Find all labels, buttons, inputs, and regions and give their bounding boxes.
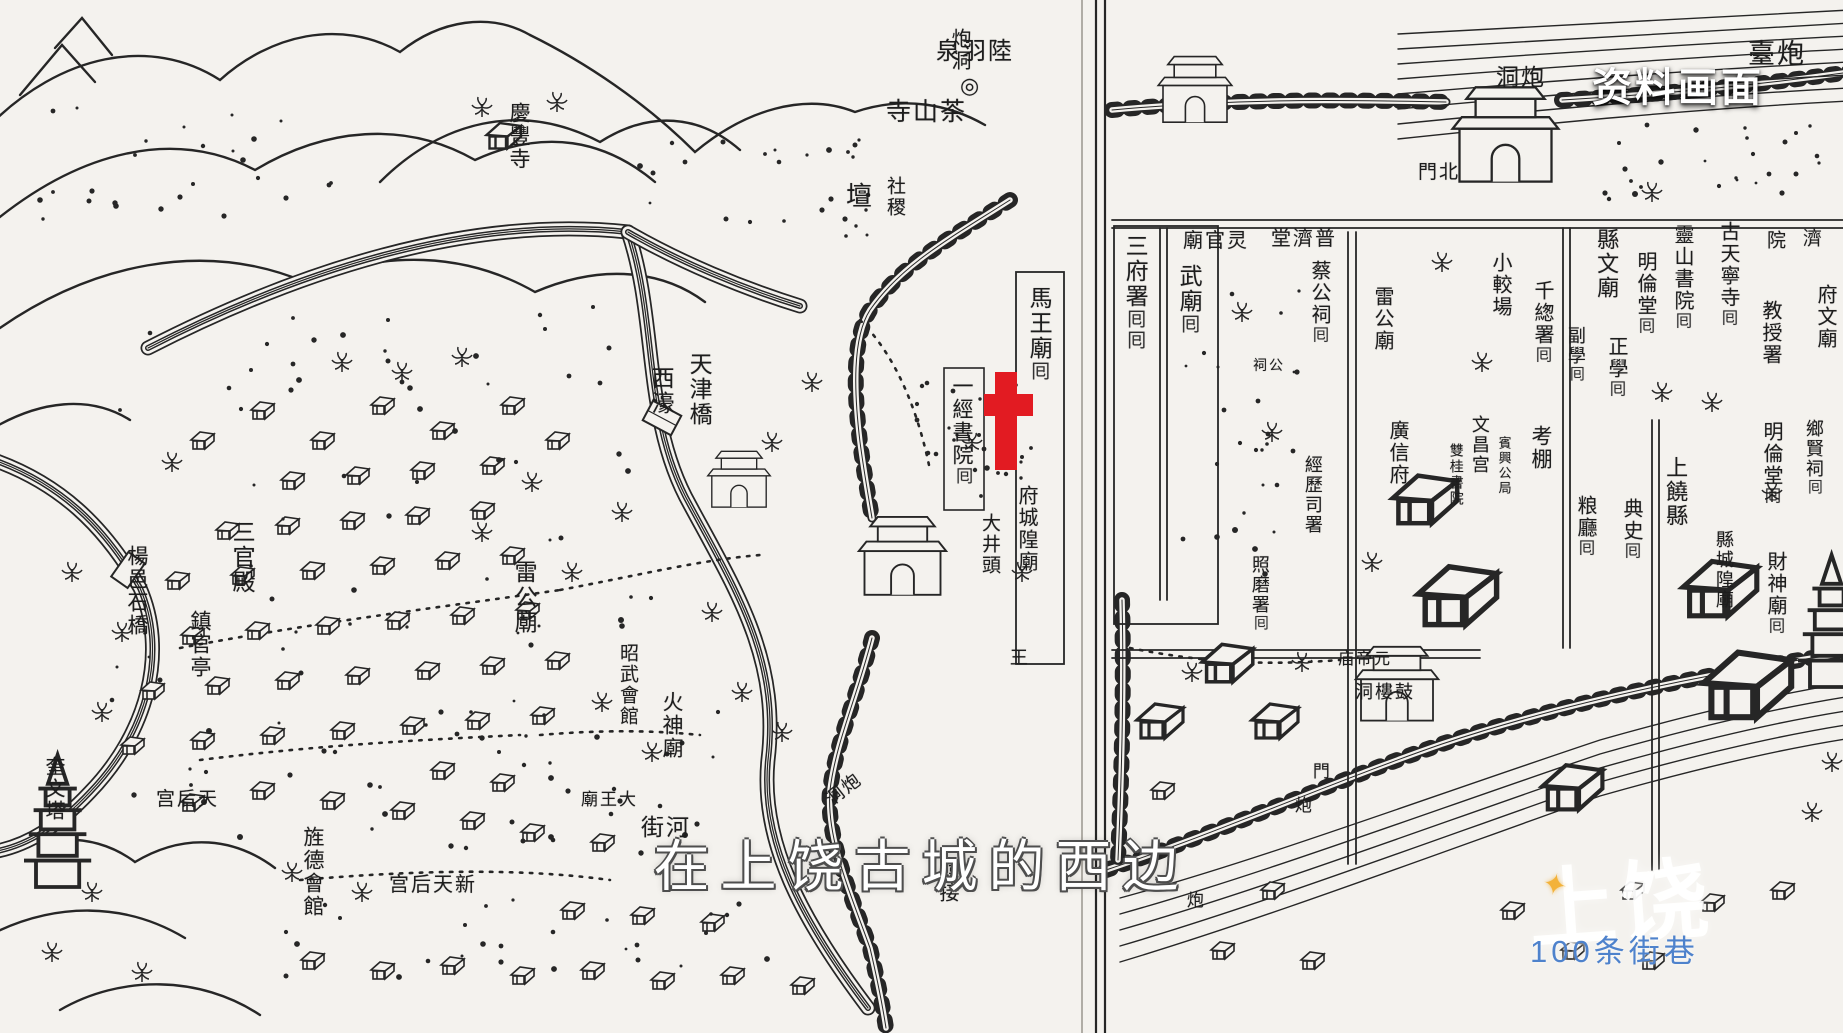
map-label: 縣城隍廟 — [1714, 530, 1733, 610]
map-label-text: 門北 — [1418, 162, 1460, 183]
map-label: 壇 — [846, 183, 874, 210]
map-label: 副學囘 — [1566, 326, 1585, 383]
map-label: 寺山茶 — [886, 100, 967, 126]
map-label-text: 考棚 — [1529, 425, 1553, 471]
hall-symbol: 囘 — [1719, 309, 1738, 327]
map-label: 縣文廟 — [1595, 228, 1618, 300]
map-label-text: 雷公廟 — [511, 560, 536, 635]
map-label: 奎文塔 — [42, 756, 63, 822]
map-label: 明倫堂囘 — [1760, 421, 1781, 505]
map-label: 照磨署囘 — [1250, 555, 1269, 632]
map-label: 炮洞 — [948, 28, 969, 72]
video-frame: 泉羽陸◎寺山茶壇社稷慶豐寺炮洞天津橋西濠馬王廟囘一經書院囘大井頭府城隍廟王三官殿… — [0, 0, 1843, 1033]
map-label-text: 明倫堂 — [1634, 251, 1656, 317]
map-label: 雙桂書院 — [1447, 443, 1462, 507]
map-label: 門北 — [1418, 163, 1460, 183]
map-label-text: 庙帝元 — [1338, 651, 1392, 668]
map-label-text: 堂濟普 — [1271, 228, 1337, 250]
map-label: 火神廟 — [661, 691, 683, 760]
map-label-text: 武廟 — [1176, 264, 1201, 314]
map-label: 教授署 — [1759, 300, 1780, 366]
map-label: 雷公廟 — [1371, 286, 1392, 352]
map-label: 洞炮 — [822, 770, 865, 810]
hall-symbol: 囘 — [1673, 312, 1692, 330]
map-label: 明倫堂囘 — [1634, 251, 1655, 335]
map-label-text: 蔡公祠 — [1308, 260, 1330, 326]
map-label: 考棚 — [1530, 425, 1552, 471]
map-label-text: 雷公廟 — [1371, 286, 1393, 352]
hall-symbol: 囘 — [1310, 326, 1329, 344]
map-label: 蔡公祠囘 — [1308, 260, 1329, 344]
map-label-text: 財神廟 — [1764, 551, 1786, 617]
map-label: 濟 — [1800, 228, 1820, 249]
map-label: 宫后天 — [156, 790, 219, 810]
map-label-text: 縣城隍廟 — [1714, 530, 1734, 610]
map-label: 堂濟普 — [1271, 229, 1337, 250]
map-label: 洞炮 — [1496, 66, 1546, 90]
hall-symbol: 囘 — [1252, 615, 1268, 632]
map-label-text: 昭武會館 — [617, 643, 638, 727]
map-label-text: 雙桂書院 — [1448, 443, 1463, 507]
map-label-text: 府文廟 — [1814, 284, 1836, 350]
map-label: 文昌宫 — [1470, 415, 1489, 475]
map-label-text: 縣文廟 — [1594, 228, 1619, 300]
map-label: 一經書院囘 — [951, 375, 973, 486]
map-label-text: 靈山書院 — [1671, 224, 1693, 312]
map-label: 社稷 — [884, 176, 904, 218]
map-label: 廣信府 — [1386, 420, 1407, 486]
map-label: 千緫署囘 — [1531, 280, 1552, 364]
map-label-text: 洞炮 — [1496, 65, 1546, 90]
map-label: 廟官灵 — [1183, 231, 1249, 252]
hall-symbol: 囘 — [1622, 542, 1641, 560]
map-label: 小較場 — [1489, 252, 1510, 318]
hall-symbol: 囘 — [1766, 617, 1785, 635]
map-label: 府城隍廟 — [1015, 485, 1036, 573]
map-label-text: 楊邑石橋 — [125, 545, 149, 637]
map-label-text: 副學 — [1566, 326, 1586, 366]
map-label-text: 洞樓鼓 — [1355, 682, 1415, 702]
map-label-text: 明倫堂 — [1760, 421, 1782, 487]
map-label-text: 一經書院 — [950, 375, 974, 467]
hall-symbol: 囘 — [1806, 479, 1822, 496]
hall-symbol: 囘 — [1568, 366, 1584, 383]
archival-footage-label: 资料画面 — [1592, 55, 1764, 113]
map-label: 庙帝元 — [1338, 652, 1392, 669]
map-label: 靈山書院囘 — [1671, 224, 1692, 330]
map-label: 西濠 — [648, 366, 672, 416]
map-label-text: 經歷司署 — [1303, 455, 1323, 535]
map-label: 鄉賢祠囘 — [1804, 419, 1823, 496]
map-label: 賓興公局 — [1497, 436, 1511, 496]
hall-symbol: 囘囘 — [1124, 309, 1145, 351]
map-label: ◎ — [960, 74, 981, 97]
map-label-text: 廟王大 — [581, 790, 638, 809]
map-label: 門 — [1310, 762, 1328, 781]
cross-vertical-bar — [995, 372, 1017, 470]
hall-symbol: 囘 — [1533, 346, 1552, 364]
map-label: 楊邑石橋 — [126, 545, 148, 637]
map-label-text: 典史 — [1620, 498, 1642, 542]
map-label-text: 炮洞 — [948, 28, 970, 72]
map-label: 三官殿 — [229, 520, 253, 595]
map-label-text: 府城隍廟 — [1015, 485, 1037, 573]
map-label-text: 古天寧寺 — [1717, 221, 1739, 309]
map-label-text: 千緫署 — [1531, 280, 1553, 346]
map-label: 武廟囘 — [1176, 264, 1200, 335]
map-label-text: 大井頭 — [979, 513, 1000, 576]
map-label-text: 馬王廟 — [1026, 286, 1051, 361]
map-label: 慶豐寺 — [508, 102, 530, 171]
hall-symbol: 囘 — [953, 467, 972, 486]
program-title: 100条街巷 — [1530, 926, 1699, 971]
map-label-text: 門 — [1310, 762, 1329, 781]
map-label-text: 天津橋 — [686, 352, 711, 427]
map-label-text: 賓興公局 — [1497, 436, 1512, 496]
map-label: 雷公廟 — [511, 560, 535, 635]
map-label-text: 三官殿 — [229, 520, 254, 595]
map-label-text: 小較場 — [1489, 252, 1511, 318]
hall-symbol: 囘 — [1762, 487, 1781, 505]
map-label-text: 壇 — [846, 182, 874, 211]
map-label-text: 祠公 — [1253, 359, 1285, 374]
map-label-text: 洞炮 — [822, 769, 866, 809]
map-label-text: 慶豐寺 — [507, 102, 531, 171]
map-label-text: 照磨署 — [1250, 555, 1270, 615]
map-label: 王 — [1008, 648, 1027, 668]
map-label: 古天寧寺囘 — [1717, 221, 1738, 327]
map-label-text: 正學 — [1605, 336, 1627, 380]
map-label: 炮 — [1292, 796, 1310, 815]
map-label-text: 宫后天 — [156, 789, 219, 810]
map-label-text: 院 — [1764, 230, 1785, 251]
map-label: 財神廟囘 — [1764, 551, 1785, 635]
map-label-text: 寺山茶 — [886, 99, 967, 126]
map-label-text: 社稷 — [884, 176, 905, 218]
map-label-text: 廣信府 — [1386, 420, 1408, 486]
map-label-text: 王 — [1008, 648, 1028, 668]
map-label: 大井頭 — [979, 513, 999, 576]
map-label: 典史囘 — [1620, 498, 1641, 560]
map-label-text: 廟官灵 — [1183, 230, 1249, 252]
map-label-text: 教授署 — [1759, 300, 1781, 366]
map-label: 院 — [1764, 230, 1784, 251]
map-label: 天津橋 — [686, 352, 710, 427]
location-marker-cross — [984, 372, 1033, 470]
map-label: 廟王大 — [581, 791, 638, 809]
map-label-text: 上饒縣 — [1663, 456, 1688, 528]
map-label: 洞樓鼓 — [1355, 683, 1415, 702]
map-label-text: 粮廳 — [1574, 495, 1596, 539]
map-label-text: 西濠 — [648, 366, 673, 416]
map-label: 祠公 — [1253, 360, 1285, 375]
map-label: 上饒縣 — [1664, 456, 1687, 528]
map-label-text: 濟 — [1800, 228, 1821, 249]
hall-symbol: 囘 — [1178, 314, 1199, 335]
map-label-text: 鄉賢祠 — [1804, 419, 1824, 479]
cross-horizontal-bar — [984, 394, 1033, 416]
map-label-text: 火神廟 — [660, 691, 684, 760]
map-label-text: 三府署 — [1122, 234, 1147, 309]
map-label: 經歷司署 — [1303, 455, 1322, 535]
map-label: 馬王廟囘 — [1026, 286, 1050, 382]
map-label: 鎮官亭 — [189, 610, 211, 679]
map-label-text: 奎文塔 — [42, 756, 64, 822]
map-label-text: ◎ — [960, 73, 981, 98]
map-label-text: 文昌宫 — [1470, 415, 1490, 475]
map-label: 粮廳囘 — [1574, 495, 1595, 557]
map-label: 正學囘 — [1605, 336, 1626, 398]
hall-symbol: 囘 — [1636, 317, 1655, 335]
map-label: 府文廟 — [1814, 284, 1835, 350]
map-label: 三府署囘囘 — [1122, 234, 1146, 351]
hall-symbol: 囘 — [1607, 380, 1626, 398]
map-label: 昭武會館 — [617, 643, 637, 727]
map-label-text: 鎮官亭 — [188, 610, 212, 679]
hall-symbol: 囘 — [1576, 539, 1595, 557]
map-label-text: 炮 — [1292, 796, 1311, 815]
